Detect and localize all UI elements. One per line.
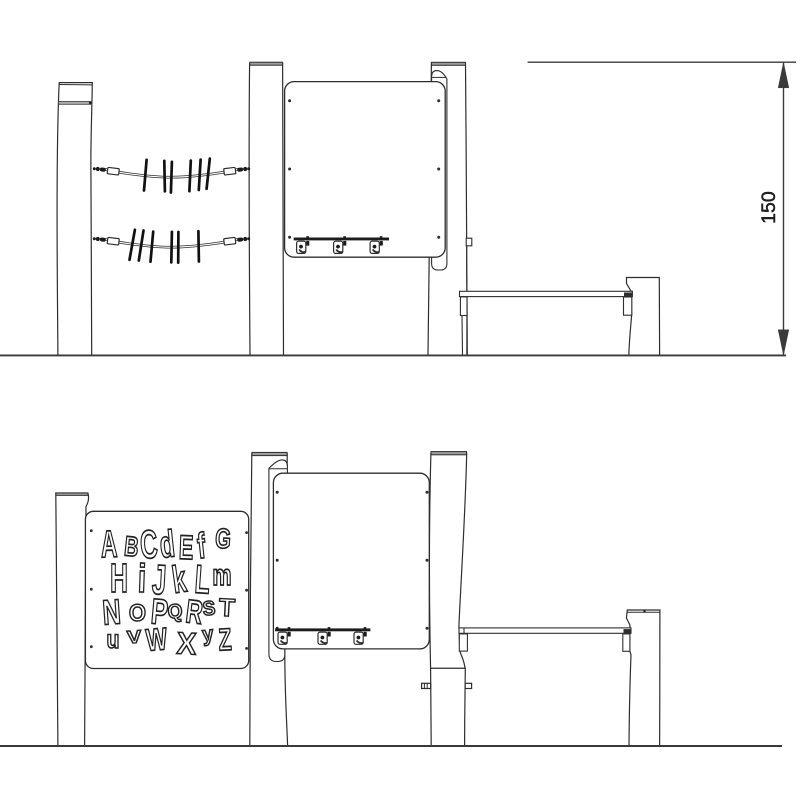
svg-text:W: W — [145, 622, 169, 658]
svg-text:G: G — [214, 523, 232, 555]
svg-text:O: O — [129, 599, 146, 626]
svg-text:u: u — [107, 625, 120, 653]
svg-text:Z: Z — [218, 622, 233, 658]
svg-text:T: T — [218, 594, 236, 622]
svg-text:V: V — [126, 627, 143, 648]
svg-text:S: S — [202, 597, 217, 621]
svg-text:Q: Q — [167, 600, 183, 624]
svg-text:150: 150 — [758, 191, 780, 224]
svg-text:i: i — [137, 557, 147, 601]
svg-text:m: m — [212, 557, 231, 591]
svg-text:X: X — [176, 627, 197, 662]
